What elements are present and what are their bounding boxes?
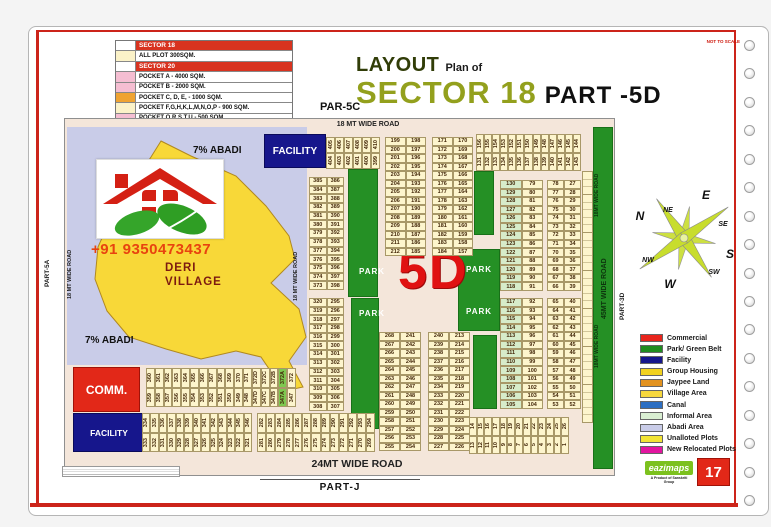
plot-254: 254 xyxy=(400,443,421,452)
plot-136: 136 xyxy=(516,153,524,172)
plot-group-1-26: 1413151216111710189198207216225234243252… xyxy=(469,417,569,454)
plot-363: 363 xyxy=(172,368,181,388)
plot-111: 111 xyxy=(500,349,522,358)
plot-305: 305 xyxy=(327,385,345,394)
plot-396: 396 xyxy=(327,264,345,273)
plot-326: 326 xyxy=(201,433,209,453)
plot-292: 292 xyxy=(348,413,357,433)
plot-249: 249 xyxy=(400,400,421,409)
plot-209: 209 xyxy=(385,222,406,231)
plot-15: 15 xyxy=(477,417,485,436)
plot-19: 19 xyxy=(507,417,515,436)
deri-village-label: DERI VILLAGE xyxy=(165,262,255,290)
advertiser-phone[interactable]: +91 9350473437 xyxy=(91,241,231,258)
plot-394: 394 xyxy=(327,247,345,256)
plot-52: 52 xyxy=(564,400,581,409)
plot-64: 64 xyxy=(547,307,564,316)
plot-280: 280 xyxy=(266,433,275,453)
plot-100: 100 xyxy=(522,366,544,375)
plot-151: 151 xyxy=(516,134,524,153)
plot-272: 272 xyxy=(339,433,348,453)
plot-333: 333 xyxy=(142,433,150,453)
plot-371: 371 xyxy=(243,368,252,388)
plot-163: 163 xyxy=(453,197,474,206)
plot-242: 242 xyxy=(400,341,421,350)
plot-154: 154 xyxy=(492,134,500,153)
plot-145: 145 xyxy=(565,134,573,153)
plot-372D: 372D xyxy=(252,368,261,388)
road-label-top: 18 MT WIDE ROAD xyxy=(303,121,433,128)
plot-141: 141 xyxy=(557,153,565,172)
road-label-18mt-right-top: 18MT WIDE ROAD xyxy=(594,164,600,226)
plot-8: 8 xyxy=(507,436,515,455)
plot-86: 86 xyxy=(522,240,544,249)
color-legend-row: Commercial xyxy=(640,334,742,342)
color-legend-row: Village Area xyxy=(640,390,742,398)
color-legend-row: Informal Area xyxy=(640,412,742,420)
plot-244: 244 xyxy=(400,358,421,367)
plot-300: 300 xyxy=(327,341,345,350)
plot-341: 341 xyxy=(201,413,209,433)
plot-338: 338 xyxy=(176,413,184,433)
park-strip-left-upper xyxy=(348,169,378,297)
plot-175: 175 xyxy=(432,171,453,180)
plot-13: 13 xyxy=(469,436,477,455)
title-part: PART -5D xyxy=(545,82,662,109)
legend-color-swatch xyxy=(116,72,136,81)
plot-5: 5 xyxy=(531,436,539,455)
plot-31: 31 xyxy=(564,214,581,223)
plot-134: 134 xyxy=(500,153,508,172)
plot-147: 147 xyxy=(549,134,557,153)
plot-150: 150 xyxy=(524,134,532,153)
plot-238: 238 xyxy=(428,349,449,358)
plot-2: 2 xyxy=(554,436,562,455)
plot-304: 304 xyxy=(327,376,345,385)
plot-94: 94 xyxy=(522,315,544,324)
plot-372B: 372B xyxy=(270,368,279,388)
plot-12: 12 xyxy=(477,436,485,455)
plot-240: 240 xyxy=(428,332,449,341)
color-legend-label: Commercial xyxy=(667,335,707,342)
plot-278: 278 xyxy=(284,433,293,453)
plot-217: 217 xyxy=(449,366,470,375)
plot-360: 360 xyxy=(146,368,155,388)
plot-63: 63 xyxy=(547,315,564,324)
plot-187: 187 xyxy=(406,231,427,240)
plot-346: 346 xyxy=(244,413,252,433)
plot-354: 354 xyxy=(190,388,199,408)
plot-372C: 372C xyxy=(261,368,270,388)
plot-259: 259 xyxy=(379,409,400,418)
binding-hole xyxy=(744,239,755,250)
plot-21: 21 xyxy=(523,417,531,436)
plot-108: 108 xyxy=(500,375,522,384)
plot-389: 389 xyxy=(327,203,345,212)
plot-347A: 347A xyxy=(278,388,287,408)
plot-18: 18 xyxy=(500,417,508,436)
plot-202: 202 xyxy=(385,163,406,172)
plot-28: 28 xyxy=(564,189,581,198)
plot-137: 137 xyxy=(524,153,532,172)
plot-133: 133 xyxy=(492,153,500,172)
plot-285: 285 xyxy=(284,413,293,433)
binding-hole xyxy=(744,495,755,506)
plot-68: 68 xyxy=(547,265,564,274)
color-legend-row: Unalloted Plots xyxy=(640,435,742,443)
plot-286: 286 xyxy=(293,413,302,433)
plot-77: 77 xyxy=(547,189,564,198)
plot-404: 404 xyxy=(326,153,335,169)
plot-246: 246 xyxy=(400,375,421,384)
plot-132: 132 xyxy=(484,153,492,172)
plot-105: 105 xyxy=(500,400,522,409)
legend-section-title: SECTOR 20 xyxy=(136,62,292,71)
title-sector: SECTOR 18 xyxy=(356,75,537,110)
plot-184: 184 xyxy=(432,248,453,257)
plot-203: 203 xyxy=(385,171,406,180)
plot-266: 266 xyxy=(379,349,400,358)
plot-179: 179 xyxy=(432,205,453,214)
legend-row: POCKET C, D, E, - 1000 SQM. xyxy=(116,93,292,103)
plot-149: 149 xyxy=(533,134,541,153)
plot-30: 30 xyxy=(564,206,581,215)
plot-275: 275 xyxy=(311,433,320,453)
legend-row: POCKET B - 2000 SQM. xyxy=(116,83,292,93)
plot-197: 197 xyxy=(406,146,427,155)
plot-207: 207 xyxy=(385,205,406,214)
plot-386: 386 xyxy=(327,177,345,186)
plot-347D: 347D xyxy=(252,388,261,408)
binding-hole xyxy=(744,97,755,108)
plot-9: 9 xyxy=(500,436,508,455)
plot-93: 93 xyxy=(522,307,544,316)
plot-237: 237 xyxy=(428,358,449,367)
plot-group-269-294: 2822812832802842792852782862772872762882… xyxy=(257,413,375,452)
plot-388: 388 xyxy=(327,194,345,203)
compass-w: W xyxy=(664,277,677,291)
plot-334: 334 xyxy=(142,413,150,433)
frame-bottom xyxy=(30,503,738,507)
plot-53: 53 xyxy=(547,400,564,409)
color-legend-swatch xyxy=(640,356,663,364)
plot-263: 263 xyxy=(379,375,400,384)
plot-228: 228 xyxy=(428,434,449,443)
plot-124: 124 xyxy=(500,231,522,240)
plot-60: 60 xyxy=(547,341,564,350)
plot-337: 337 xyxy=(167,413,175,433)
plot-82: 82 xyxy=(522,206,544,215)
plot-399: 399 xyxy=(371,153,380,169)
plot-71: 71 xyxy=(547,240,564,249)
plot-375: 375 xyxy=(309,264,327,273)
plot-91: 91 xyxy=(522,282,544,291)
legend-color-swatch xyxy=(116,93,136,102)
plot-45: 45 xyxy=(564,341,581,350)
plot-16: 16 xyxy=(484,417,492,436)
plot-17: 17 xyxy=(492,417,500,436)
plot-113: 113 xyxy=(500,332,522,341)
not-to-scale-note: NOT TO SCALE xyxy=(694,39,740,44)
plot-236: 236 xyxy=(428,366,449,375)
plot-406: 406 xyxy=(335,137,344,153)
plot-152: 152 xyxy=(508,134,516,153)
plot-385: 385 xyxy=(309,177,327,186)
plot-group-79-130: 1307912980128811278212683125841248512386… xyxy=(500,180,543,291)
plot-65: 65 xyxy=(547,298,564,307)
plot-41: 41 xyxy=(564,307,581,316)
color-legend-row: Canal xyxy=(640,401,742,409)
plot-34: 34 xyxy=(564,240,581,249)
plot-201: 201 xyxy=(385,154,406,163)
plot-107: 107 xyxy=(500,383,522,392)
plot-302: 302 xyxy=(327,359,345,368)
plot-76: 76 xyxy=(547,197,564,206)
plot-290: 290 xyxy=(330,413,339,433)
plot-306: 306 xyxy=(327,394,345,403)
plot-115: 115 xyxy=(500,315,522,324)
plot-92: 92 xyxy=(522,298,544,307)
plot-112: 112 xyxy=(500,341,522,350)
plot-223: 223 xyxy=(449,417,470,426)
color-legend-label: Facility xyxy=(667,357,691,364)
binding-hole xyxy=(744,211,755,222)
plot-279: 279 xyxy=(275,433,284,453)
plot-390: 390 xyxy=(327,212,345,221)
plot-325: 325 xyxy=(210,433,218,453)
part-j-label: PART-J xyxy=(260,479,420,493)
plot-257: 257 xyxy=(379,426,400,435)
plot-24: 24 xyxy=(546,417,554,436)
plot-252: 252 xyxy=(400,426,421,435)
color-legend-swatch xyxy=(640,334,663,342)
park-strip-right-lower xyxy=(473,335,497,409)
plot-208: 208 xyxy=(385,214,406,223)
plot-230: 230 xyxy=(428,417,449,426)
plot-57: 57 xyxy=(547,366,564,375)
plot-282: 282 xyxy=(257,413,266,433)
plot-138: 138 xyxy=(533,153,541,172)
plot-39: 39 xyxy=(564,282,581,291)
plot-11: 11 xyxy=(484,436,492,455)
eazimaps-logo[interactable]: eazimaps xyxy=(645,461,693,475)
plot-102: 102 xyxy=(522,383,544,392)
plot-336: 336 xyxy=(159,413,167,433)
plot-342: 342 xyxy=(210,413,218,433)
color-legend-label: Village Area xyxy=(667,390,707,397)
plot-284: 284 xyxy=(275,413,284,433)
plot-135: 135 xyxy=(508,153,516,172)
plot-164: 164 xyxy=(453,188,474,197)
color-legend-swatch xyxy=(640,379,663,387)
plot-140: 140 xyxy=(549,153,557,172)
plot-329: 329 xyxy=(176,433,184,453)
plot-103: 103 xyxy=(522,392,544,401)
plot-89: 89 xyxy=(522,265,544,274)
plot-407: 407 xyxy=(344,137,353,153)
plot-155: 155 xyxy=(484,134,492,153)
compass-n: N xyxy=(636,209,645,223)
binding-hole xyxy=(744,68,755,79)
plot-307: 307 xyxy=(327,402,345,411)
plot-387: 387 xyxy=(327,186,345,195)
page-title: LAYOUT Plan of SECTOR 18PART -5D xyxy=(356,55,686,108)
plot-358: 358 xyxy=(155,388,164,408)
color-legend-row: Jaypee Land xyxy=(640,379,742,387)
plot-311: 311 xyxy=(309,376,327,385)
plot-120: 120 xyxy=(500,265,522,274)
legend-row: POCKET A - 4000 SQM. xyxy=(116,72,292,82)
plot-331: 331 xyxy=(159,433,167,453)
plot-335: 335 xyxy=(150,413,158,433)
road-label-left: 18 MT WIDE ROAD xyxy=(67,217,73,332)
plot-378: 378 xyxy=(309,238,327,247)
plot-142: 142 xyxy=(565,153,573,172)
plot-315: 315 xyxy=(309,341,327,350)
binding-hole xyxy=(744,154,755,165)
plot-384: 384 xyxy=(309,186,327,195)
binding-hole xyxy=(744,125,755,136)
plot-48: 48 xyxy=(564,366,581,375)
plot-50: 50 xyxy=(564,383,581,392)
plot-119: 119 xyxy=(500,274,522,283)
plot-186: 186 xyxy=(406,239,427,248)
plot-379: 379 xyxy=(309,229,327,238)
plot-365: 365 xyxy=(190,368,199,388)
plot-376: 376 xyxy=(309,255,327,264)
plot-309: 309 xyxy=(309,394,327,403)
plot-347C: 347C xyxy=(261,388,270,408)
plot-23: 23 xyxy=(538,417,546,436)
plot-271: 271 xyxy=(348,433,357,453)
binding-hole xyxy=(744,381,755,392)
plot-167: 167 xyxy=(453,163,474,172)
plot-85: 85 xyxy=(522,231,544,240)
binding-hole xyxy=(744,324,755,335)
plot-178: 178 xyxy=(432,197,453,206)
plot-131: 131 xyxy=(476,153,484,172)
plot-173: 173 xyxy=(432,154,453,163)
plot-261: 261 xyxy=(379,392,400,401)
plot-32: 32 xyxy=(564,223,581,232)
plot-193: 193 xyxy=(406,180,427,189)
plot-294: 294 xyxy=(366,413,375,433)
color-legend-label: Jaypee Land xyxy=(667,379,709,386)
plot-114: 114 xyxy=(500,324,522,333)
facility-block-top: FACILITY xyxy=(264,134,326,168)
plot-281: 281 xyxy=(257,433,266,453)
plot-88: 88 xyxy=(522,257,544,266)
plot-96: 96 xyxy=(522,332,544,341)
color-legend-label: Unalloted Plots xyxy=(667,435,718,442)
plot-6: 6 xyxy=(523,436,531,455)
binding-hole xyxy=(744,353,755,364)
park-label-4: PARK xyxy=(459,307,499,316)
plot-200: 200 xyxy=(385,146,406,155)
color-legend-row: Abadi Area xyxy=(640,424,742,432)
plot-80: 80 xyxy=(522,189,544,198)
plot-group-399-410: 405404406403407402408401409400410399 xyxy=(326,137,380,169)
legend-swatch-empty xyxy=(116,41,136,50)
binding-hole xyxy=(744,182,755,193)
plot-55: 55 xyxy=(547,383,564,392)
plot-1: 1 xyxy=(561,436,569,455)
frame-left xyxy=(36,30,39,507)
plot-320: 320 xyxy=(309,298,327,307)
plot-194: 194 xyxy=(406,171,427,180)
plot-235: 235 xyxy=(428,375,449,384)
plot-51: 51 xyxy=(564,392,581,401)
plot-129: 129 xyxy=(500,189,522,198)
plot-185: 185 xyxy=(406,248,427,257)
plot-67: 67 xyxy=(547,274,564,283)
legend-row-label: ALL PLOT 300SQM. xyxy=(136,51,292,60)
plot-381: 381 xyxy=(309,212,327,221)
binding-hole xyxy=(744,438,755,449)
plot-183: 183 xyxy=(432,239,453,248)
plot-232: 232 xyxy=(428,400,449,409)
plot-58: 58 xyxy=(547,358,564,367)
sector-map: +91 9350473437 DERI VILLAGE 7% ABADI 7% … xyxy=(64,118,615,476)
house-leaf-logo xyxy=(97,160,223,238)
plot-364: 364 xyxy=(181,368,190,388)
binding-hole xyxy=(744,296,755,307)
color-legend-swatch xyxy=(640,390,663,398)
plot-216: 216 xyxy=(449,358,470,367)
plot-260: 260 xyxy=(379,400,400,409)
plot-group-295-320: 3202953192963182973172983162993153003143… xyxy=(309,298,344,411)
plot-213: 213 xyxy=(449,332,470,341)
park-label-1: PARK xyxy=(352,267,392,276)
plot-295: 295 xyxy=(327,298,345,307)
plot-248: 248 xyxy=(400,392,421,401)
plot-316: 316 xyxy=(309,333,327,342)
plot-157: 157 xyxy=(453,248,474,257)
plot-372: 372 xyxy=(287,368,296,388)
plot-174: 174 xyxy=(432,163,453,172)
plot-group-241-268: 2682412672422662432652442642452632462622… xyxy=(379,332,421,451)
plot-330: 330 xyxy=(167,433,175,453)
plot-81: 81 xyxy=(522,197,544,206)
compass-se: SE xyxy=(718,221,728,228)
plot-90: 90 xyxy=(522,274,544,283)
plot-95: 95 xyxy=(522,324,544,333)
plot-374: 374 xyxy=(309,273,327,282)
plot-401: 401 xyxy=(353,153,362,169)
park-strip-right-upper xyxy=(474,171,494,235)
plot-218: 218 xyxy=(449,375,470,384)
plot-62: 62 xyxy=(547,324,564,333)
plot-214: 214 xyxy=(449,341,470,350)
plot-110: 110 xyxy=(500,358,522,367)
plot-181: 181 xyxy=(432,222,453,231)
color-legend-label: Group Housing xyxy=(667,368,718,375)
plot-293: 293 xyxy=(357,413,366,433)
plot-403: 403 xyxy=(335,153,344,169)
plot-40: 40 xyxy=(564,298,581,307)
plot-72: 72 xyxy=(547,231,564,240)
plot-362: 362 xyxy=(164,368,173,388)
plot-347: 347 xyxy=(287,388,296,408)
plot-299: 299 xyxy=(327,333,345,342)
compass-e: E xyxy=(702,188,711,202)
color-legend-swatch xyxy=(640,401,663,409)
plot-66: 66 xyxy=(547,282,564,291)
legend-row: POCKET F,G,H,K,L,M,N,O,P - 900 SQM. xyxy=(116,103,292,113)
plot-78: 78 xyxy=(547,180,564,189)
plot-125: 125 xyxy=(500,223,522,232)
plot-162: 162 xyxy=(453,205,474,214)
